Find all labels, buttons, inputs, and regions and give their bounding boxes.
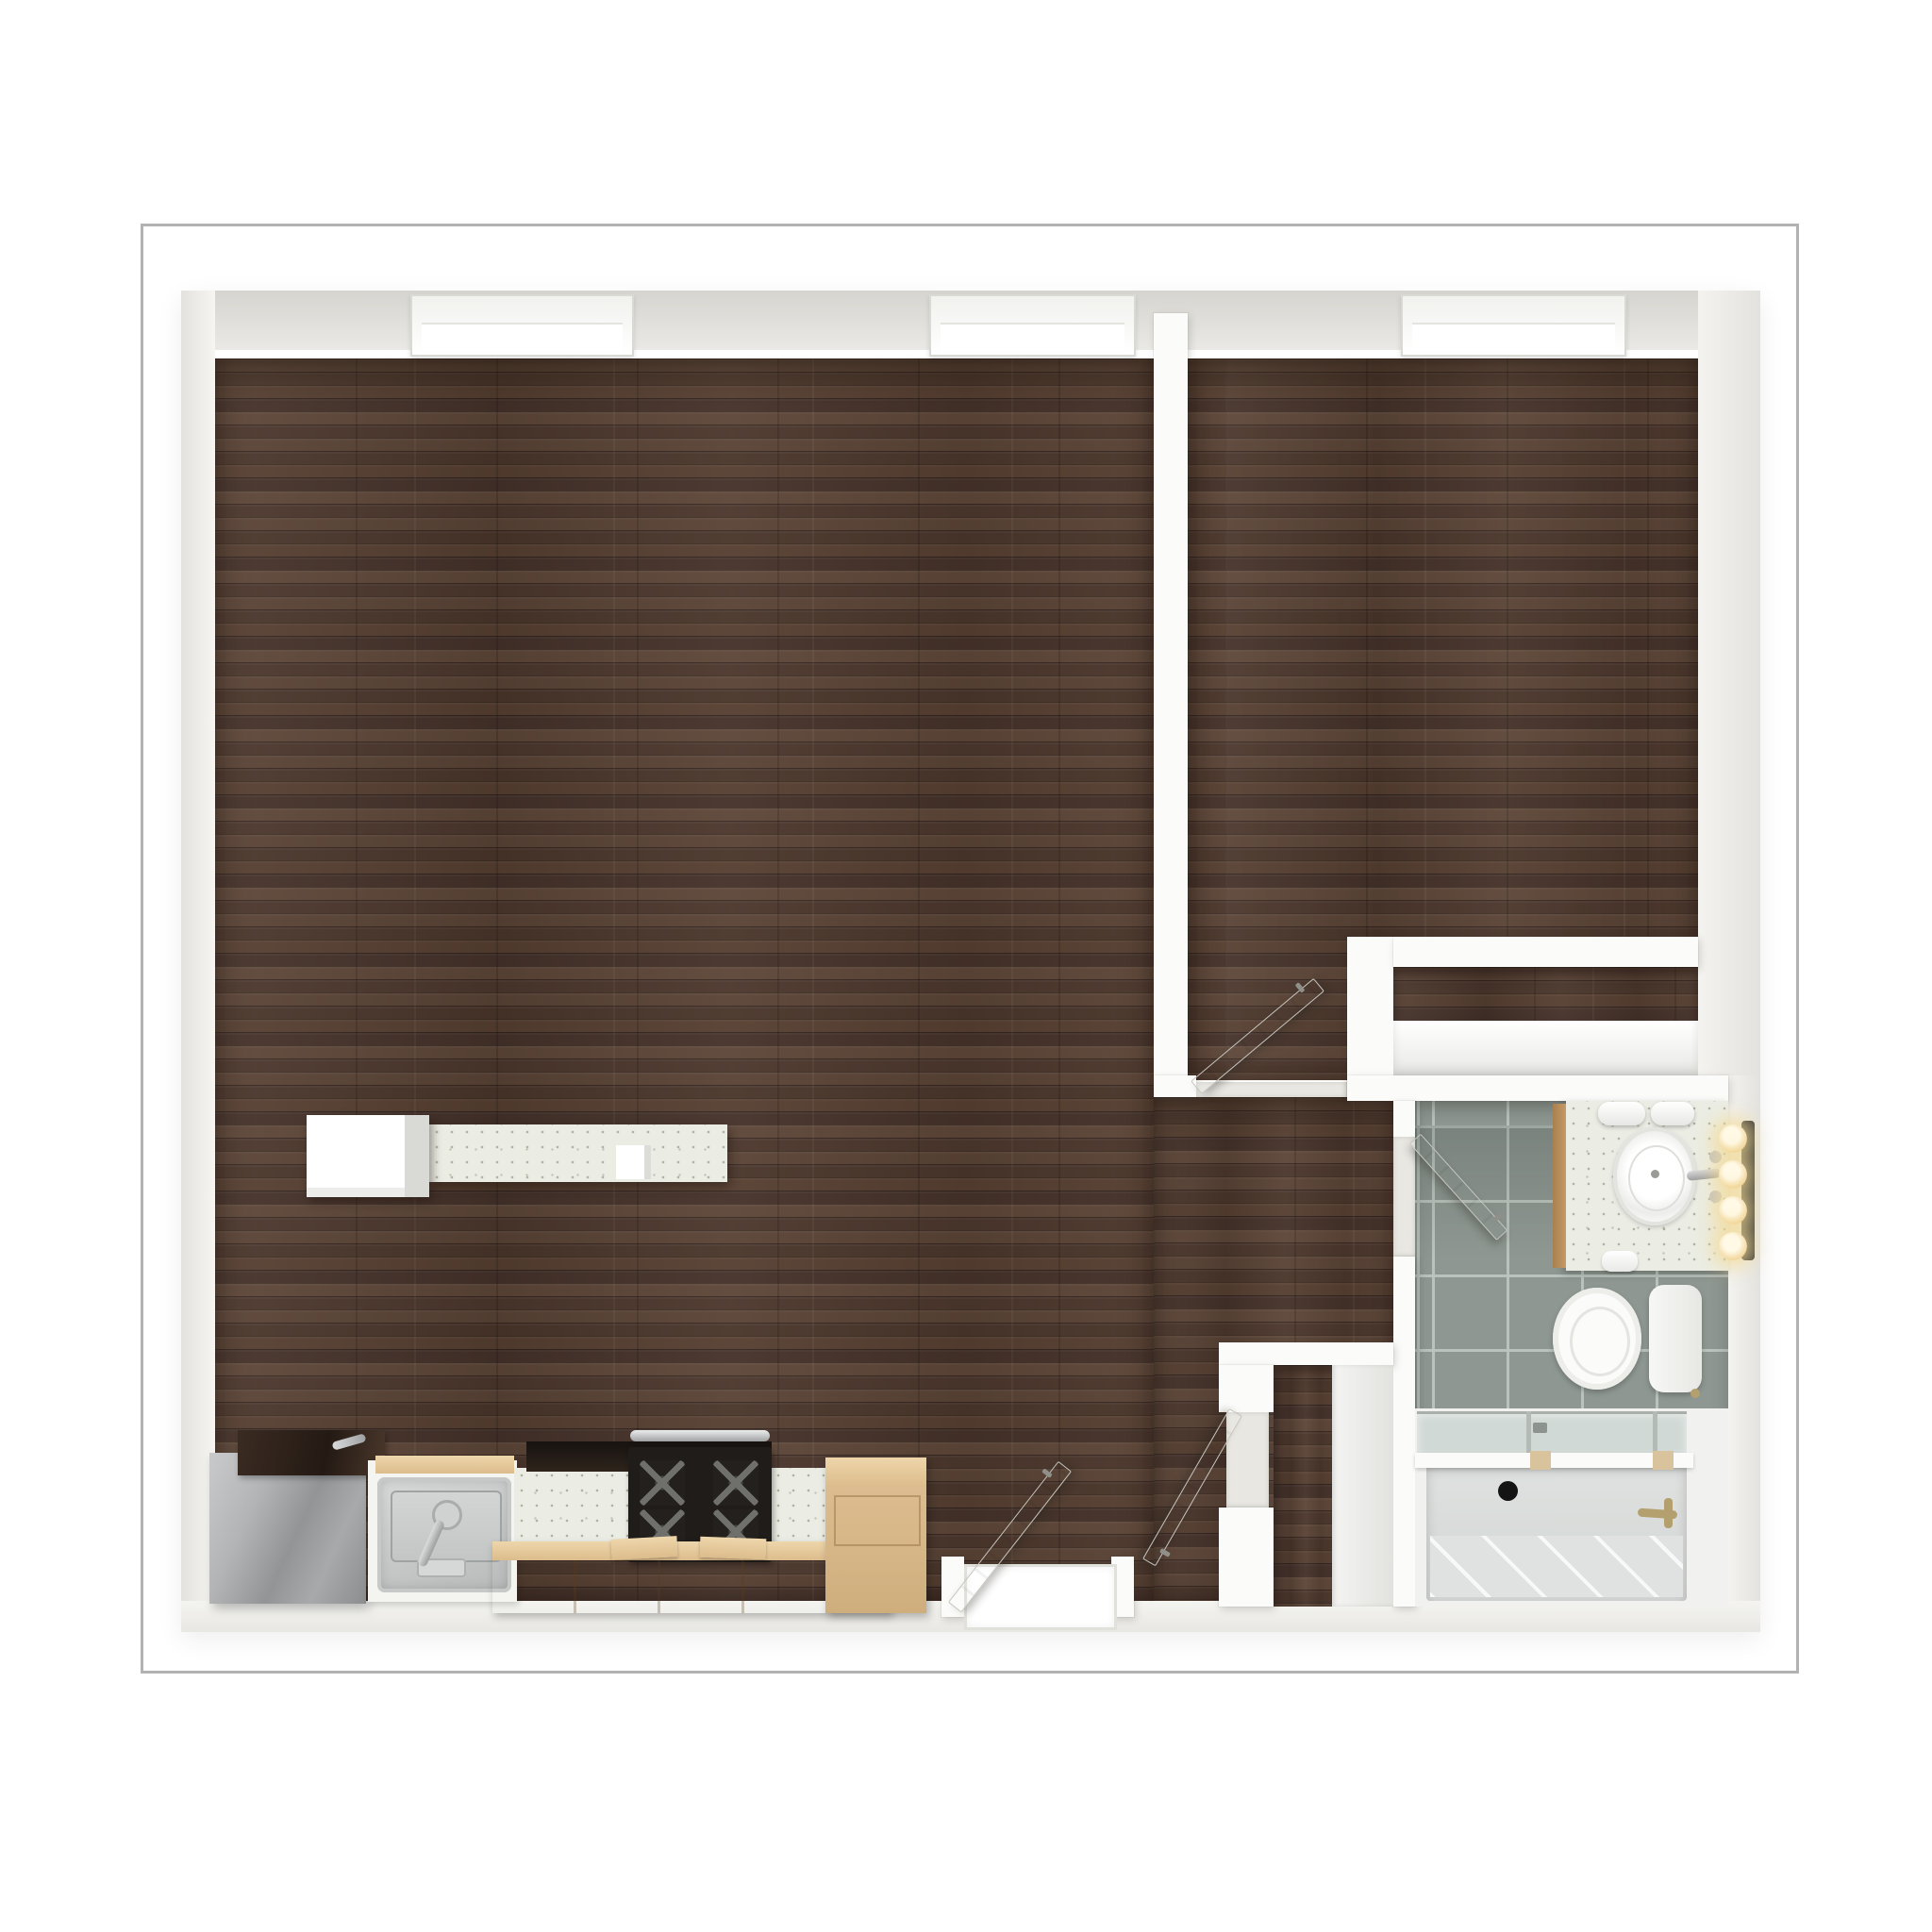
glass-screen-mullion bbox=[1526, 1411, 1531, 1455]
window-sill bbox=[941, 325, 1124, 351]
tall-cabinet-panel bbox=[834, 1495, 921, 1546]
bathtub-rail bbox=[1415, 1453, 1693, 1468]
vanity-faucet-handle bbox=[1709, 1151, 1722, 1163]
window-living-right bbox=[929, 294, 1136, 357]
vanity-drain bbox=[1651, 1170, 1659, 1178]
vanity-light-bulb bbox=[1719, 1232, 1747, 1260]
bedroom-closet-top-wall bbox=[1393, 937, 1698, 967]
island-counter bbox=[429, 1124, 727, 1182]
rolled-towel bbox=[1598, 1102, 1645, 1125]
window-sill bbox=[422, 325, 623, 351]
wall-band-right-upper bbox=[1698, 291, 1760, 1075]
entry-closet-panel bbox=[1332, 1365, 1393, 1607]
vanity-light-bulb bbox=[1719, 1124, 1747, 1153]
refrigerator bbox=[209, 1453, 366, 1604]
bedroom-closet-floor bbox=[1393, 967, 1698, 1021]
bathtub-drain bbox=[1498, 1481, 1518, 1501]
range-burner bbox=[713, 1460, 758, 1506]
floor-plan-canvas bbox=[0, 0, 1932, 1932]
living-room-floor bbox=[215, 358, 1154, 1601]
wall-band-left bbox=[181, 291, 215, 1632]
window-living-left bbox=[410, 294, 634, 357]
divider-wall bbox=[1154, 313, 1188, 1097]
vanity-light-bulb bbox=[1719, 1160, 1747, 1189]
glass-screen-handle bbox=[1533, 1423, 1547, 1433]
window-sill bbox=[1412, 325, 1615, 351]
toilet-seat-inner bbox=[1570, 1307, 1630, 1376]
vanity-faucet-handle bbox=[1709, 1191, 1722, 1203]
entry-closet-left-wall-lower bbox=[1219, 1507, 1274, 1607]
range-handle bbox=[630, 1430, 770, 1441]
window-bedroom bbox=[1401, 294, 1626, 357]
vanity-light-bulb bbox=[1719, 1196, 1747, 1224]
bathroom-left-wall-lower bbox=[1393, 1257, 1415, 1607]
entry-closet-top-wall bbox=[1219, 1342, 1393, 1365]
entry-closet-left-wall-upper bbox=[1219, 1365, 1274, 1412]
bedroom-door-threshold bbox=[1196, 1082, 1347, 1097]
entry-closet-floor bbox=[1274, 1365, 1332, 1607]
vanity-sink-inner bbox=[1628, 1145, 1685, 1211]
bathtub-floor-planks bbox=[1430, 1536, 1683, 1597]
rolled-towel bbox=[1651, 1102, 1694, 1125]
bedroom-closet-shelf bbox=[1393, 1021, 1698, 1075]
sink-backsplash bbox=[375, 1456, 514, 1474]
bathroom-left-wall-upper bbox=[1393, 1101, 1415, 1137]
rail-block bbox=[1530, 1451, 1551, 1470]
cabinet-door-panel bbox=[700, 1537, 767, 1559]
range-burner bbox=[640, 1460, 685, 1506]
bedroom-closet-left-wall bbox=[1347, 937, 1393, 1097]
bedroom-wall-stub bbox=[1154, 1075, 1196, 1097]
island-notch bbox=[616, 1145, 651, 1179]
bathroom-door-threshold bbox=[1393, 1137, 1415, 1257]
glass-screen-mullion bbox=[1653, 1411, 1657, 1455]
toilet-tank bbox=[1649, 1285, 1702, 1392]
bathtub-faucet-cross bbox=[1664, 1498, 1673, 1528]
bathroom-top-wall bbox=[1347, 1075, 1728, 1101]
tall-cabinet-top bbox=[825, 1457, 926, 1487]
vanity-wood-trim bbox=[1553, 1104, 1566, 1268]
toilet-paper-holder bbox=[1602, 1251, 1638, 1272]
rail-block bbox=[1653, 1451, 1674, 1470]
island-cabinet bbox=[307, 1115, 429, 1197]
cabinet-door-panel bbox=[610, 1536, 677, 1560]
bathtub-hook bbox=[1690, 1389, 1700, 1398]
